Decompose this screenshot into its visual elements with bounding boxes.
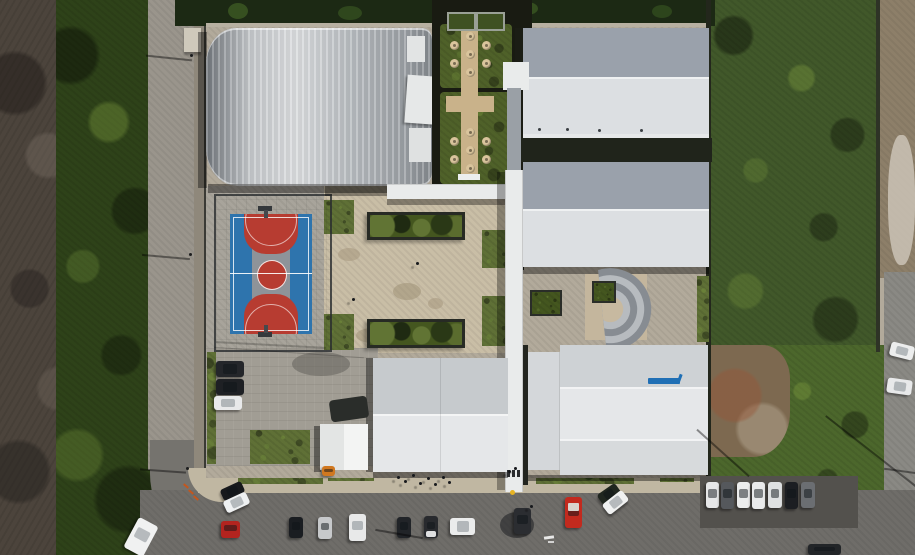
hedge-blob-2 [338,6,362,20]
garden-planter-box-2 [476,12,505,31]
plaza-planter-north [367,212,465,240]
tent-canopy-west [320,424,344,470]
hoop-south-post [264,325,268,333]
planter-amphitheater-2 [592,281,616,303]
street-edge-car [808,544,841,555]
parked-car-white [214,396,242,410]
plaza-top-shadow [325,186,387,196]
hedge-blob-4 [652,5,672,18]
picnic-cluster-south [446,126,494,174]
building-east-2-slope-south [523,210,709,267]
person [416,262,419,265]
walkway-stub-north [503,62,529,90]
building-se-left-wing [528,352,560,470]
hedge-blob-1 [228,3,248,19]
roof-vent-2 [566,128,569,131]
person [514,467,517,470]
building-se-band-low [560,440,708,475]
building-se-band-top [560,345,708,388]
fire-truck-roof [568,503,579,511]
picnic-table [466,32,475,41]
utility-pole-1 [190,54,193,57]
person [404,480,407,483]
building-east-1-slope-north [523,28,709,78]
building-east-2-ridge [523,209,709,211]
planter-amphitheater-1 [530,290,562,316]
dirt-northeast-light-patch [888,135,915,265]
utility-pole-2 [189,253,192,256]
road-marking-2 [548,541,554,543]
parked-suv-1 [216,361,244,377]
utility-vehicle [322,466,335,476]
plaza-planter-south [367,319,465,348]
amphitheater [598,259,702,351]
gym-annex-3 [409,128,431,162]
street-car-1 [289,517,303,538]
person [419,482,422,485]
east-lot-car-3 [737,482,750,508]
building-east-1-ridge [523,77,709,79]
grass-amphitheater-east [697,276,709,342]
moving-car-dark [514,508,531,534]
person [508,470,511,473]
gate-turnstile-3 [517,470,520,477]
east-lot-car-6 [785,482,798,509]
picnic-table [450,41,459,50]
picnic-table [450,59,459,68]
east-lot-car-5 [768,482,782,508]
picnic-table [482,41,491,50]
gap-between-east-buildings [520,138,712,162]
east-lot-car-4 [752,482,765,509]
field-east [708,0,878,355]
east-lot-car-2 [721,482,734,509]
court-half-line [230,273,312,274]
building-south-eave-shadow [373,472,508,478]
picnic-table [482,59,491,68]
utility-pole-3 [186,467,189,470]
basketball-court [230,214,312,334]
garden-path-cross [446,96,494,112]
pavement-stain-3 [428,298,443,309]
east-lot-car-7 [801,482,815,508]
person [412,474,415,477]
grass-south-strip [250,430,310,464]
picnic-table [466,164,475,173]
picnic-table [466,146,475,155]
walkway-covered-gray [507,88,521,172]
parked-suv-2 [216,379,244,395]
east-lot-car-1 [706,482,719,508]
hoop-north-post [264,210,268,218]
gymnasium-roof [206,28,432,186]
street-car-4-trunk [426,531,436,537]
roof-vent-3 [598,129,601,132]
street-van-white [349,514,366,541]
picnic-table [450,137,459,146]
moving-van-white [450,518,475,535]
picnic-table [482,155,491,164]
walkway-arm-shadow [387,199,508,205]
tree-strip-west [56,0,152,555]
gym-annex-1 [407,36,425,62]
picnic-table [466,50,475,59]
picnic-table [450,155,459,164]
person [352,298,355,301]
building-se-ridge-2 [560,439,708,441]
red-car [221,521,240,538]
gate-turnstile-2 [512,470,515,477]
pavement-stain-1 [338,248,360,261]
picnic-table [482,137,491,146]
person [530,505,533,508]
walkway-arm-north [387,184,508,199]
aerial-photo-campus [0,0,915,555]
roof-vent-1 [538,128,541,131]
garden-planter-box-1 [447,12,476,31]
dirt-patch-southeast [698,345,790,457]
person [442,476,445,479]
roof-vent-4 [640,129,643,132]
fire-truck [565,497,582,528]
picnic-cluster-north [446,30,494,78]
pavement-stain-2 [393,283,421,300]
tent-canopy-east [344,424,368,470]
person [427,477,430,480]
bollard-yellow [510,490,515,495]
person [448,481,451,484]
picnic-table [466,68,475,77]
building-south-seam [440,358,441,472]
person [397,476,400,479]
building-east-1-slope-south [523,78,709,136]
building-east-2-slope-north [523,162,709,210]
building-se-ridge-1 [560,387,708,389]
garden-bench [458,174,480,180]
picnic-table [466,128,475,137]
building-se-eave-shadow [528,475,708,481]
street-car-2 [318,517,332,539]
person [434,483,437,486]
building-se-band-mid [560,388,708,440]
